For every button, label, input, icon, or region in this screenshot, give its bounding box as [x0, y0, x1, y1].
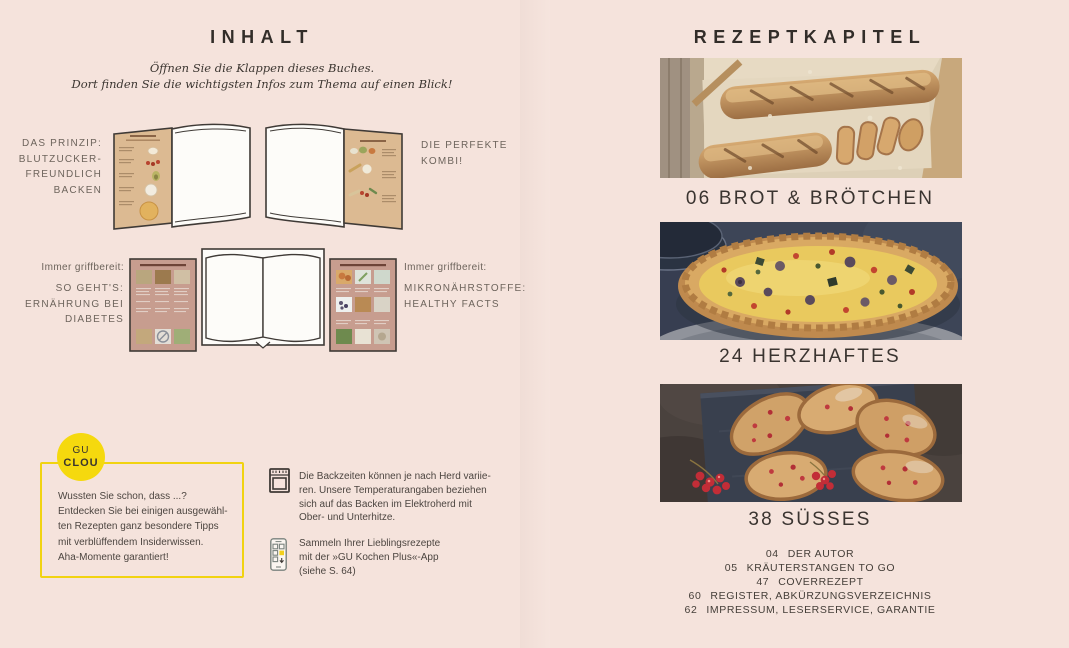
- clou-line: mit verblüffendem Insiderwissen.: [58, 535, 230, 550]
- page-title-rezeptkapitel: REZEPTKAPITEL: [544, 26, 1069, 48]
- label-mikronaehrstoffe: MIKRONÄHRSTOFFE: HEALTHY FACTS: [404, 281, 534, 312]
- bread-photo: [660, 58, 962, 178]
- clou-line: Aha-Momente garantiert!: [58, 550, 230, 565]
- label-line: DIABETES: [0, 312, 124, 328]
- badge-text-gu: GU: [73, 445, 90, 457]
- toc-label: DER AUTOR: [788, 548, 854, 560]
- note-line: Die Backzeiten können je nach Herd varii…: [299, 470, 509, 484]
- badge-text-clou: CLOU: [63, 457, 98, 469]
- quiche-photo: [660, 222, 962, 340]
- label-line: DAS PRINZIP:: [0, 136, 102, 152]
- toc-row: 62IMPRESSUM, LESERSERVICE, GARANTIE: [544, 603, 1069, 617]
- label-line: BLUTZUCKER-: [0, 152, 102, 168]
- toc-label: IMPRESSUM, LESERSERVICE, GARANTIE: [706, 604, 935, 616]
- toc-row: 60REGISTER, ABKÜRZUNGSVERZEICHNIS: [544, 589, 1069, 603]
- toc-row: 47COVERREZEPT: [544, 575, 1069, 589]
- note-line: Ober- und Unterhitze.: [299, 511, 509, 525]
- oven-icon: [269, 468, 290, 493]
- toc-page-number: 60: [689, 590, 702, 602]
- toc-label: COVERREZEPT: [778, 576, 863, 588]
- label-line: KOMBI!: [421, 154, 531, 170]
- book-spread: INHALT Öffnen Sie die Klappen dieses Buc…: [0, 0, 1069, 648]
- label-line: FREUNDLICH: [0, 167, 102, 183]
- gu-clou-text: Wussten Sie schon, dass ...? Entdecken S…: [58, 489, 230, 565]
- intro-line: Dort finden Sie die wichtigsten Infos zu…: [0, 77, 524, 93]
- toc-page-number: 47: [756, 576, 769, 588]
- label-perfekte-kombi: DIE PERFEKTE KOMBI!: [421, 138, 531, 169]
- gu-clou-badge: GU CLOU: [57, 433, 105, 481]
- label-das-prinzip: DAS PRINZIP: BLUTZUCKER- FREUNDLICH BACK…: [0, 136, 102, 198]
- clou-line: Entdecken Sie bei einigen ausgewähl-: [58, 504, 230, 519]
- toc-page-number: 04: [766, 548, 779, 560]
- note-line: (siehe S. 64): [299, 565, 509, 579]
- toc-row: 05KRÄUTERSTANGEN TO GO: [544, 561, 1069, 575]
- open-book-right-flap-illustration: [262, 119, 408, 231]
- app-note-text: Sammeln Ihrer Lieblingsrezepte mit der »…: [299, 537, 509, 578]
- intro-text: Öffnen Sie die Klappen dieses Buches. Do…: [0, 61, 524, 92]
- right-flap-thumbnails: [336, 270, 390, 344]
- toc-row: 04DER AUTOR: [544, 547, 1069, 561]
- kicker-immer-griffbereit-right: Immer griffbereit:: [404, 261, 534, 274]
- mini-toc: 04DER AUTOR 05KRÄUTERSTANGEN TO GO 47COV…: [544, 547, 1069, 617]
- left-page: INHALT Öffnen Sie die Klappen dieses Buc…: [0, 0, 536, 648]
- vegetable-tart: [678, 234, 958, 338]
- currant-cake-photo: [660, 384, 962, 502]
- label-line: MIKRONÄHRSTOFFE:: [404, 281, 534, 297]
- toc-page-number: 05: [725, 562, 738, 574]
- open-book-left-flap-illustration: [108, 119, 258, 231]
- toc-label: KRÄUTERSTANGEN TO GO: [747, 562, 896, 574]
- toc-page-number: 62: [685, 604, 698, 616]
- toc-label: REGISTER, ABKÜRZUNGSVERZEICHNIS: [710, 590, 931, 602]
- label-line: BACKEN: [0, 183, 102, 199]
- chapter-heading-brot: 06 BROT & BRÖTCHEN: [544, 188, 1069, 210]
- note-line: sich auf das Backen im Elektroherd mit: [299, 498, 509, 512]
- right-page: REZEPTKAPITEL: [536, 0, 1069, 648]
- label-line: ERNÄHRUNG BEI: [0, 297, 124, 313]
- label-so-gehts: SO GEHT'S: ERNÄHRUNG BEI DIABETES: [0, 281, 124, 328]
- kicker-immer-griffbereit-left: Immer griffbereit:: [0, 261, 124, 274]
- page-title-inhalt: INHALT: [0, 26, 524, 48]
- chapter-heading-herzhaftes: 24 HERZHAFTES: [544, 346, 1069, 368]
- smartphone-app-icon: [270, 538, 287, 571]
- clou-line: Wussten Sie schon, dass ...?: [58, 489, 230, 504]
- note-line: ren. Unsere Temperaturangaben beziehen: [299, 484, 509, 498]
- clou-line: ten Rezepten ganz besondere Tipps: [58, 519, 230, 534]
- label-line: SO GEHT'S:: [0, 281, 124, 297]
- baking-note-text: Die Backzeiten können je nach Herd varii…: [299, 470, 509, 525]
- label-line: HEALTHY FACTS: [404, 297, 534, 313]
- chapter-heading-suesses: 38 SÜSSES: [544, 509, 1069, 531]
- intro-line: Öffnen Sie die Klappen dieses Buches.: [0, 61, 524, 77]
- label-line: DIE PERFEKTE: [421, 138, 531, 154]
- note-line: mit der »GU Kochen Plus«-App: [299, 551, 509, 565]
- note-line: Sammeln Ihrer Lieblingsrezepte: [299, 537, 509, 551]
- open-book-gatefold-illustration: [128, 245, 398, 355]
